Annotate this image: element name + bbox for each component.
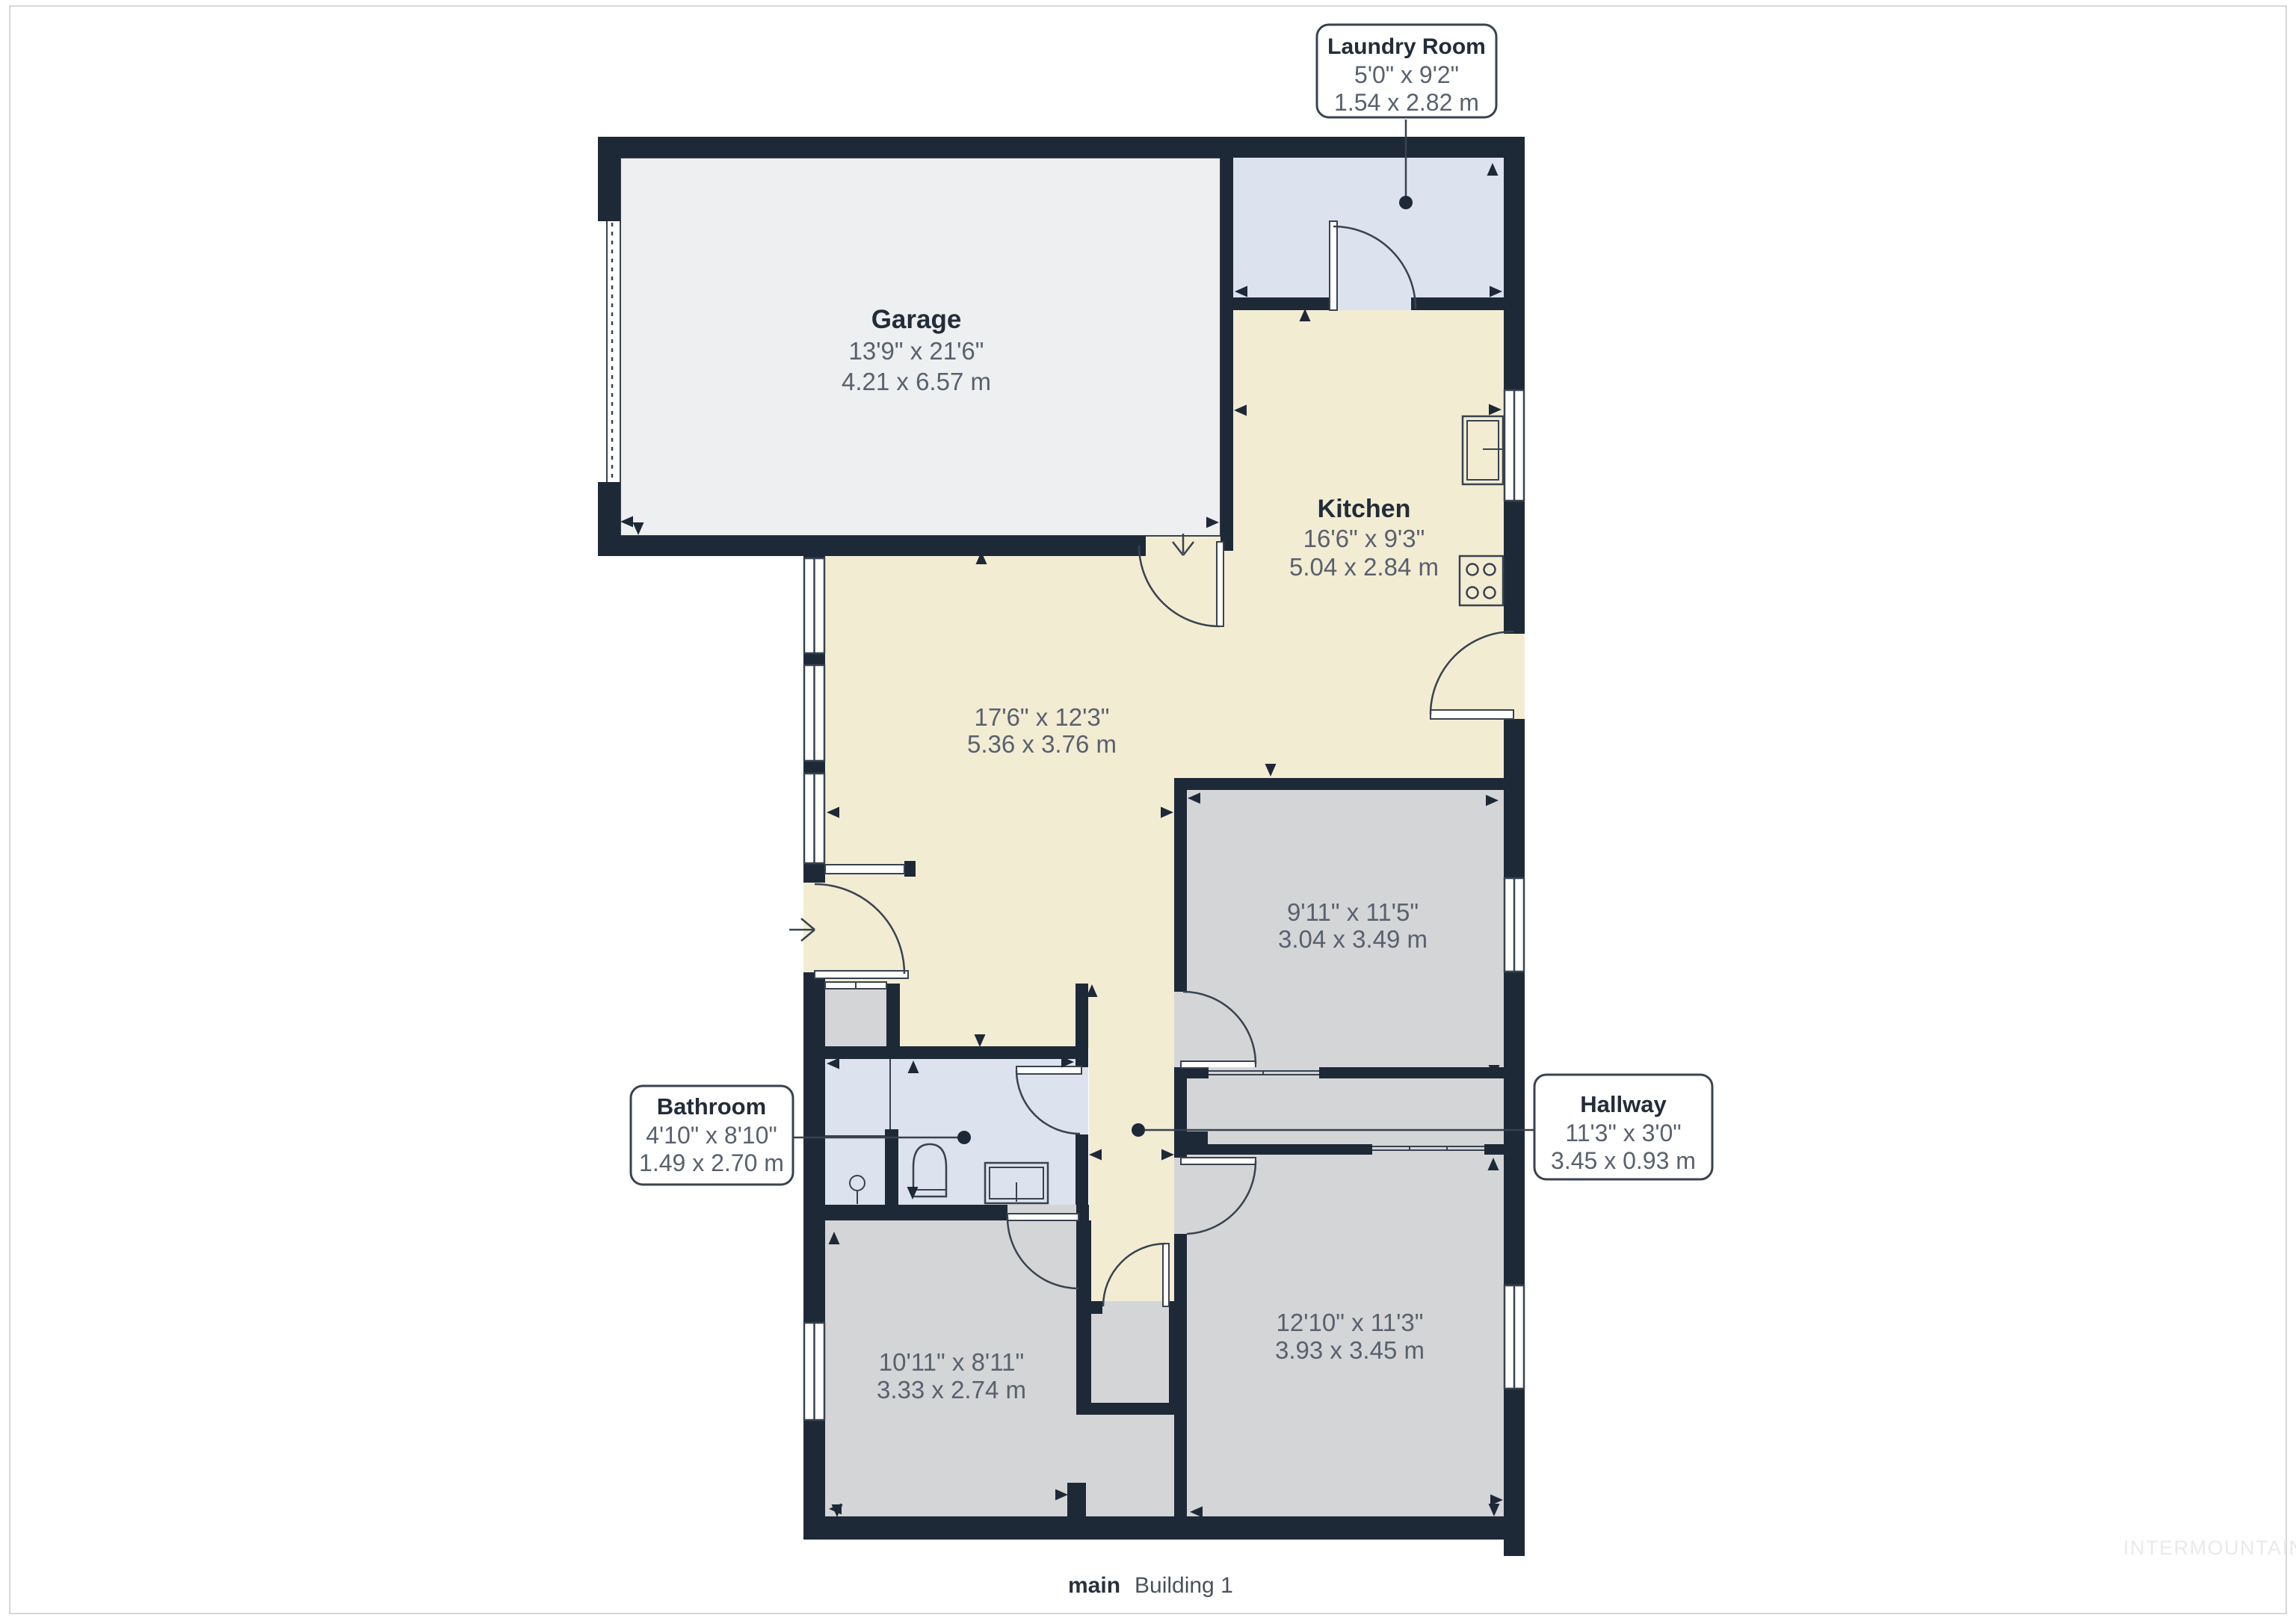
- svg-text:10'11" x 8'11": 10'11" x 8'11": [879, 1348, 1024, 1376]
- svg-text:11'3" x 3'0": 11'3" x 3'0": [1565, 1120, 1681, 1146]
- svg-text:Kitchen: Kitchen: [1318, 495, 1411, 523]
- svg-text:Laundry Room: Laundry Room: [1327, 34, 1486, 59]
- svg-text:1.54 x 2.82 m: 1.54 x 2.82 m: [1334, 89, 1479, 116]
- svg-text:3.93 x 3.45 m: 3.93 x 3.45 m: [1275, 1336, 1425, 1364]
- svg-text:INTERMOUNTAIN: INTERMOUNTAIN: [2123, 1537, 2296, 1559]
- svg-text:Garage: Garage: [871, 305, 962, 334]
- svg-text:4'10" x 8'10": 4'10" x 8'10": [646, 1122, 777, 1149]
- svg-text:5.04 x 2.84 m: 5.04 x 2.84 m: [1289, 553, 1439, 581]
- svg-text:16'6" x 9'3": 16'6" x 9'3": [1303, 525, 1425, 552]
- svg-text:main: main: [1068, 1573, 1120, 1598]
- svg-text:1.49 x 2.70 m: 1.49 x 2.70 m: [639, 1149, 784, 1176]
- svg-text:4.21 x 6.57 m: 4.21 x 6.57 m: [842, 368, 991, 395]
- svg-text:3.45 x 0.93 m: 3.45 x 0.93 m: [1551, 1147, 1696, 1174]
- svg-text:9'11" x 11'5": 9'11" x 11'5": [1287, 898, 1419, 926]
- svg-text:13'9" x 21'6": 13'9" x 21'6": [849, 337, 984, 365]
- svg-text:17'6" x 12'3": 17'6" x 12'3": [975, 703, 1110, 731]
- svg-text:Hallway: Hallway: [1580, 1091, 1667, 1117]
- svg-text:5'0" x 9'2": 5'0" x 9'2": [1354, 61, 1459, 88]
- svg-text:3.33 x 2.74 m: 3.33 x 2.74 m: [877, 1376, 1026, 1404]
- svg-text:Bathroom: Bathroom: [657, 1093, 766, 1120]
- svg-text:Building 1: Building 1: [1135, 1573, 1233, 1598]
- svg-text:5.36 x 3.76 m: 5.36 x 3.76 m: [967, 730, 1117, 758]
- svg-text:12'10" x 11'3": 12'10" x 11'3": [1277, 1309, 1424, 1336]
- svg-text:3.04 x 3.49 m: 3.04 x 3.49 m: [1278, 925, 1428, 953]
